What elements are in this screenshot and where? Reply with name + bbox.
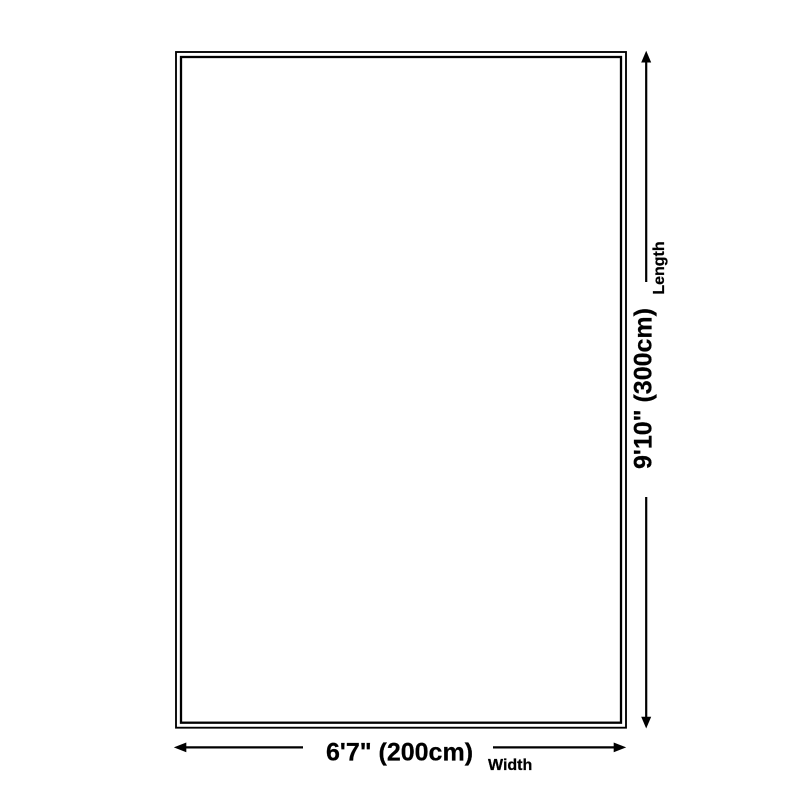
svg-text:6'7" (200cm): 6'7" (200cm) [326,739,473,767]
svg-text:Width: Width [488,757,532,774]
svg-text:Length: Length [651,241,668,294]
svg-text:9'10" (300cm): 9'10" (300cm) [630,308,658,469]
